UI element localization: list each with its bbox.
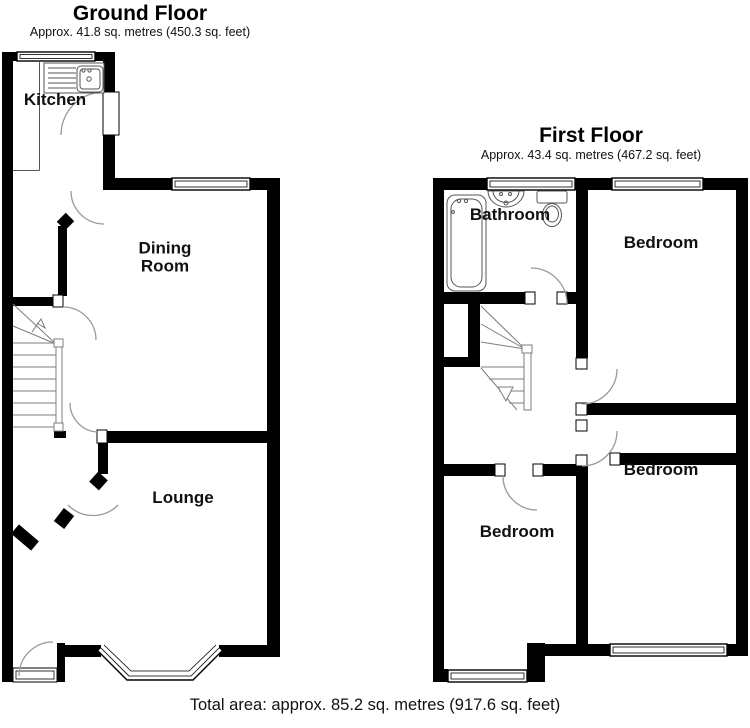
wall-lounge-corner [98,443,108,474]
room-label-kitchen: Kitchen [24,91,86,109]
room-label-bathroom: Bathroom [470,206,550,224]
wall-landing-bottom-left [444,464,495,476]
wall-closet-horizontal [444,357,480,367]
front-bedroom-door-jamb [576,358,587,369]
wall-kitchen-top-left [2,52,17,61]
wall-stub-understairs [15,529,35,546]
wall-frontdoor-stub [57,643,65,682]
wall-bathroom-bottom [444,292,525,304]
wall-left [2,52,13,682]
wall-stub-hall-lounge [59,512,69,525]
floorplan-drawing [0,0,750,728]
kitchen-side-door-frame [103,92,119,135]
kitchen-lobby-door-arc [71,191,104,224]
front-bedroom-door-jamb [576,403,587,415]
wall-top-2 [575,178,612,190]
toilet-cistern [537,191,567,203]
stairs-rail [524,349,531,410]
wall-bedroom-divider [576,466,588,647]
wall-landing-bottom-mid [543,464,577,476]
front-bedroom-door-arc [582,369,617,404]
stairs-rail [56,343,62,427]
ground-staircase [13,304,63,431]
stairs-break-mark [498,387,513,401]
dining-door-arc [70,403,98,432]
first-floor-title: First Floor [539,124,643,148]
room-label-bedroom-front: Bedroom [624,234,699,252]
wall-bottom-right-2 [727,644,748,656]
first-floor-plan [433,178,748,682]
room-label-dining-room: Dining Room [129,240,201,277]
wall-front-bedroom-bottom [587,403,747,415]
rear-bedroom-door-jamb [576,420,587,431]
kitchen-fixtures [13,61,104,171]
dining-window [172,178,250,190]
wall-stairs-top [13,297,53,306]
wall-right [736,178,748,656]
wall-kitchen-right-upper [103,52,115,92]
wall-bottom-left-corner [433,669,448,682]
bathroom-window [487,178,575,190]
wall-step-block [527,643,545,682]
newel-post [54,431,66,438]
total-area-text: Total area: approx. 85.2 sq. metres (917… [190,696,561,715]
left-bedroom-window [448,670,527,682]
wall-hall-dining [58,226,67,296]
room-label-bedroom-rear: Bedroom [624,461,699,479]
hall-door-arc [63,307,96,340]
floorplan-page: Ground Floor Approx. 41.8 sq. metres (45… [0,0,750,728]
wall-right [267,178,280,657]
ground-floor-plan [2,52,280,682]
wall-dining-top-left [103,178,172,190]
front-bedroom-window [612,178,703,190]
wall-left [433,178,444,681]
room-label-bedroom-left: Bedroom [480,523,555,541]
dining-door-jamb [97,430,107,443]
rear-bedroom-door-jamb [576,455,587,466]
rear-bedroom-window [610,644,727,656]
kitchen-window [17,52,95,61]
first-floor-subtitle: Approx. 43.4 sq. metres (467.2 sq. feet) [481,148,701,162]
ground-floor-subtitle: Approx. 41.8 sq. metres (450.3 sq. feet) [30,25,250,39]
wall-landing-bedroom [576,190,588,358]
lounge-bay-window [98,645,222,680]
stairs-door-jamb [53,295,63,307]
lounge-door-arc [68,505,118,516]
first-door-frames [495,292,620,476]
left-bedroom-door-jamb [495,464,505,476]
room-label-lounge: Lounge [152,489,213,507]
rear-bedroom-door-jamb [610,453,620,465]
wall-lounge-front-right [219,645,280,657]
wall-stub-angled-lounge [94,476,103,486]
wall-dining-lounge-divider [107,431,267,443]
stairs-up-mark [32,319,45,332]
wall-stub-angled-upper [61,217,70,226]
left-bedroom-door-arc [503,476,537,510]
ground-floor-title: Ground Floor [73,2,207,26]
ground-windows [17,52,250,680]
kitchen-worktop-edge [13,61,40,171]
left-bedroom-door-jamb [533,464,543,476]
bathroom-door-jamb [525,292,535,304]
first-staircase [481,306,532,410]
wall-lounge-front-left [65,645,101,657]
